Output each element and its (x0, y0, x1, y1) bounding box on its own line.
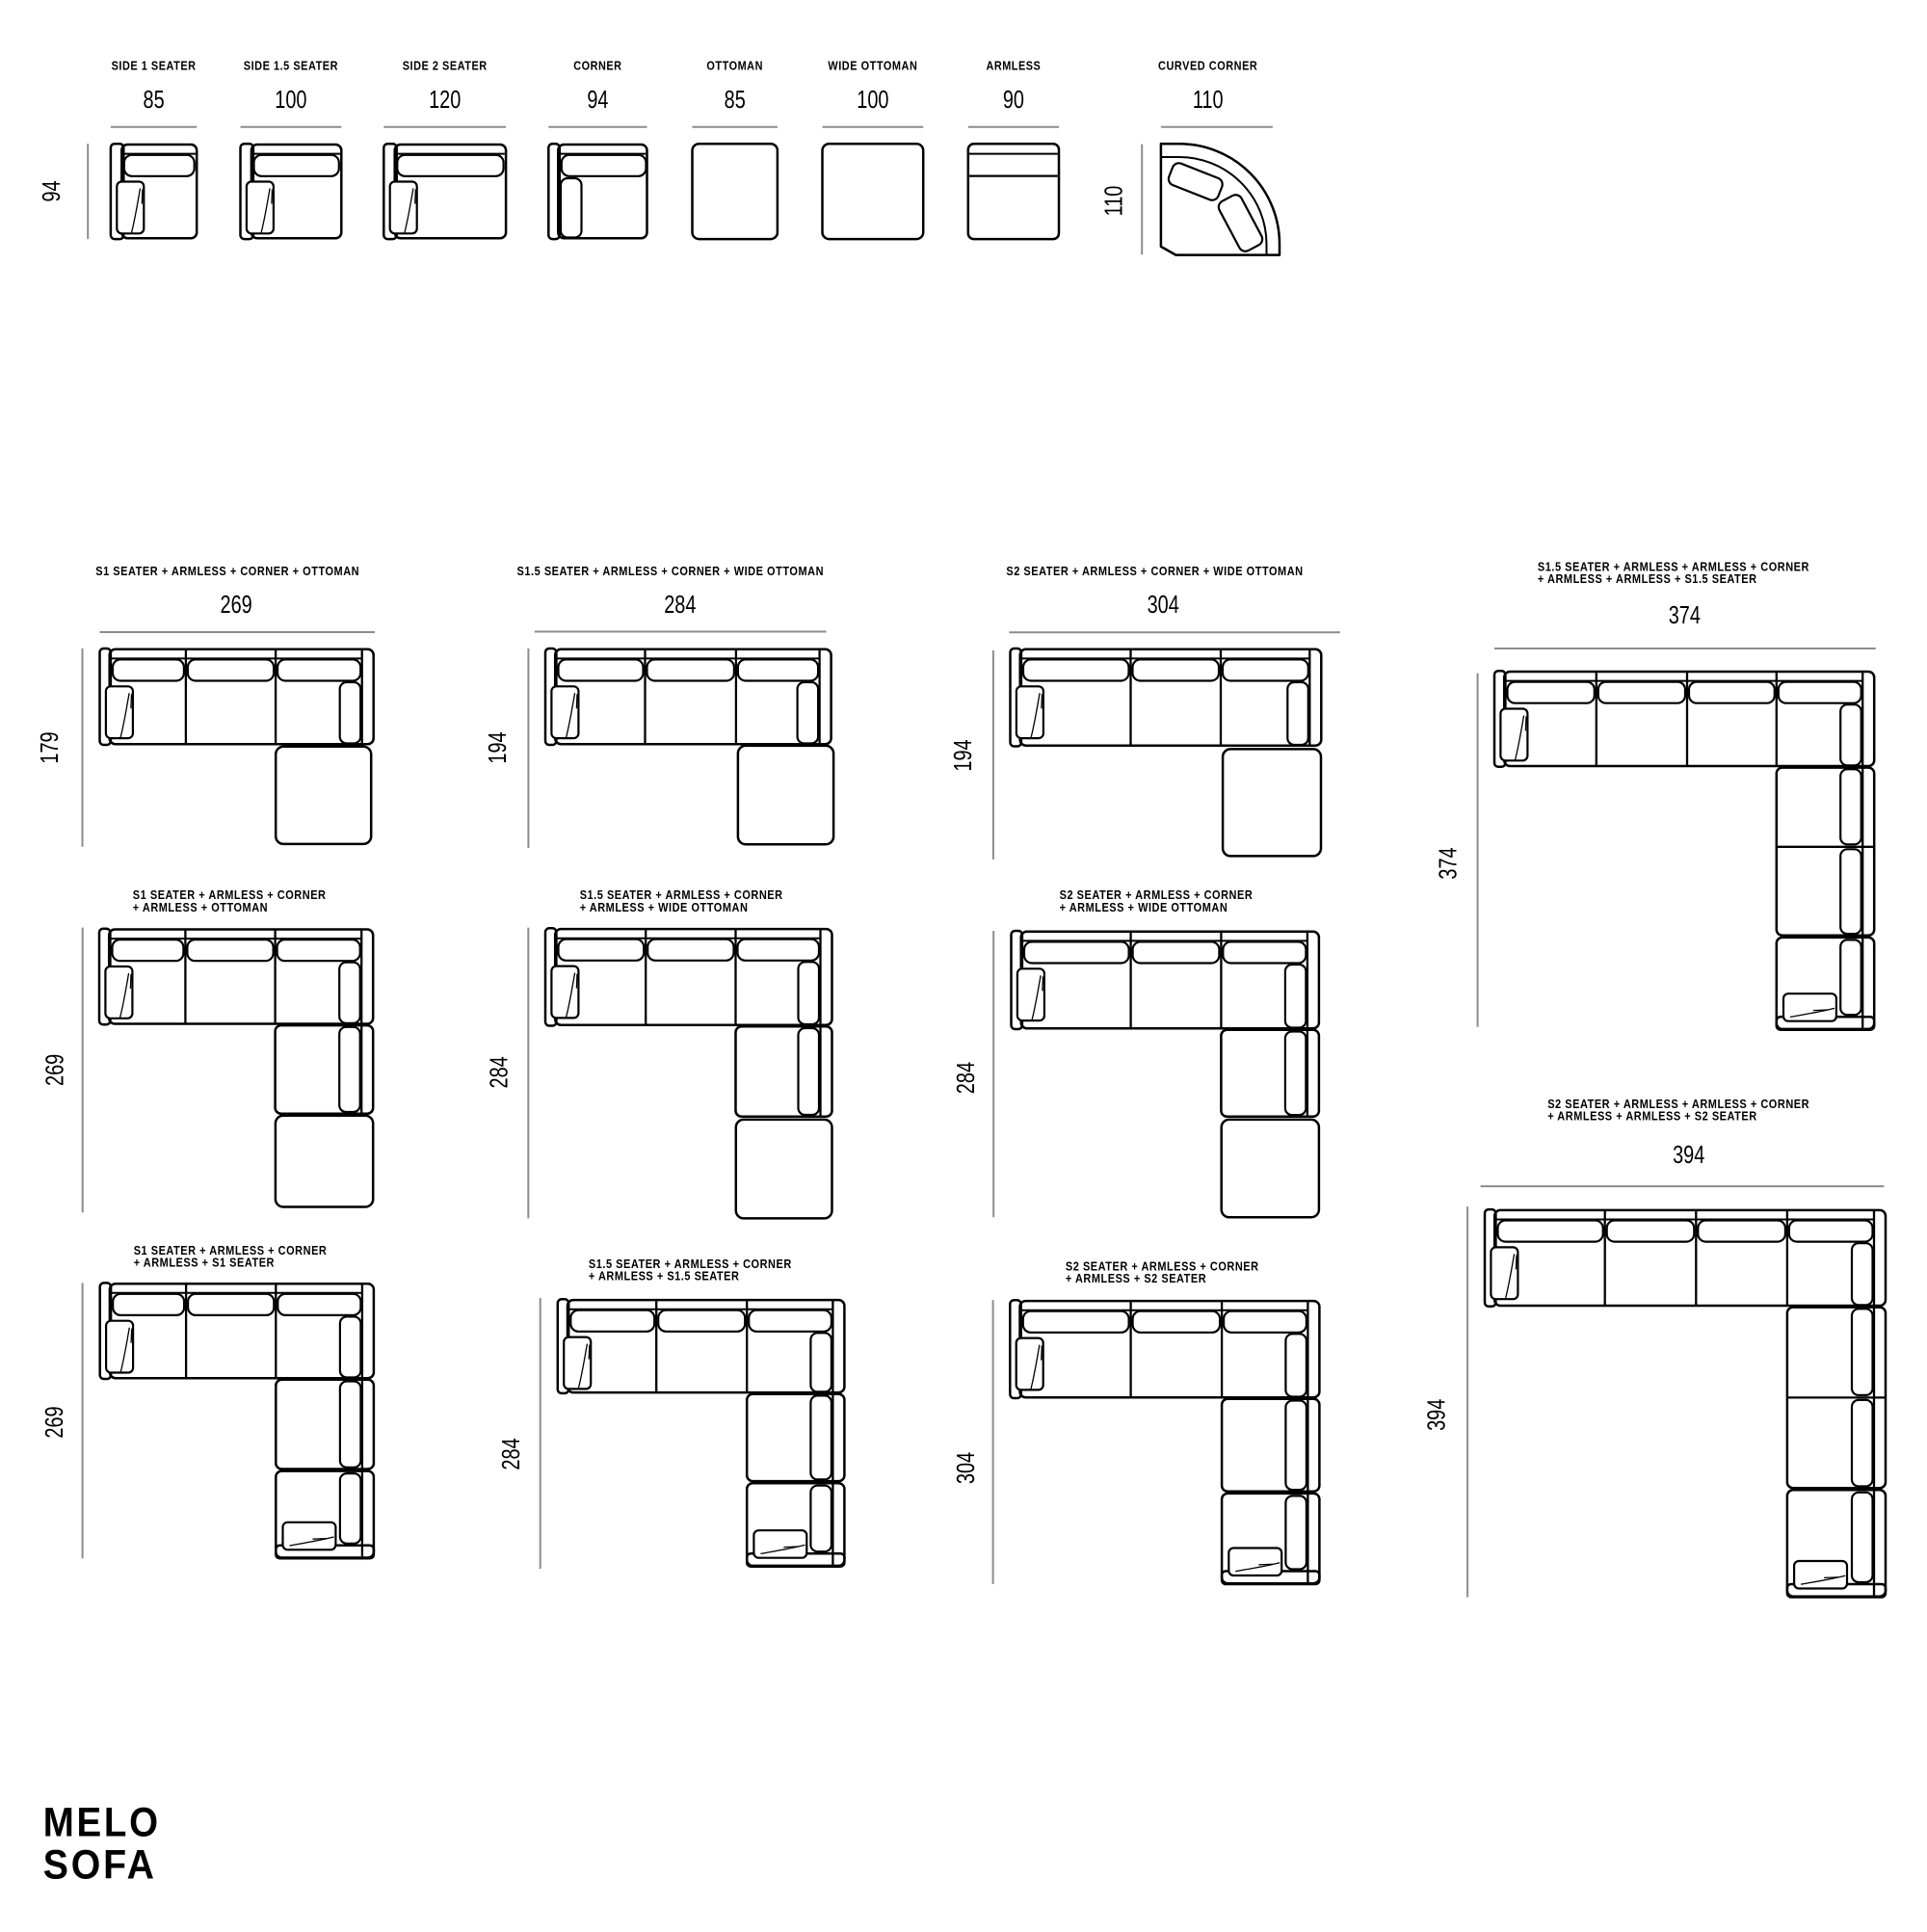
svg-text:194: 194 (485, 731, 512, 763)
svg-text:OTTOMAN: OTTOMAN (706, 59, 763, 72)
svg-text:CURVED CORNER: CURVED CORNER (1158, 59, 1257, 72)
svg-text:179: 179 (37, 731, 64, 763)
svg-text:+ ARMLESS + S2 SEATER: + ARMLESS + S2 SEATER (1066, 1272, 1206, 1285)
svg-text:SIDE 1.5 SEATER: SIDE 1.5 SEATER (244, 59, 338, 72)
svg-text:374: 374 (1669, 602, 1701, 629)
svg-text:SOFA: SOFA (43, 1842, 157, 1888)
svg-text:110: 110 (1193, 87, 1224, 114)
svg-text:284: 284 (487, 1056, 514, 1088)
svg-text:SIDE 2 SEATER: SIDE 2 SEATER (403, 59, 488, 72)
svg-text:S1.5 SEATER + ARMLESS + CORNER: S1.5 SEATER + ARMLESS + CORNER (580, 888, 783, 902)
svg-text:S1 SEATER + ARMLESS + CORNER: S1 SEATER + ARMLESS + CORNER (133, 888, 327, 902)
svg-text:S2 SEATER + ARMLESS + CORNER +: S2 SEATER + ARMLESS + CORNER + WIDE OTTO… (1006, 565, 1303, 578)
svg-text:SIDE 1 SEATER: SIDE 1 SEATER (112, 59, 197, 72)
svg-text:+ ARMLESS + WIDE OTTOMAN: + ARMLESS + WIDE OTTOMAN (580, 901, 749, 914)
svg-text:304: 304 (1148, 592, 1179, 619)
svg-text:269: 269 (41, 1406, 68, 1438)
svg-text:94: 94 (587, 87, 608, 114)
svg-text:S1 SEATER + ARMLESS + CORNER +: S1 SEATER + ARMLESS + CORNER + OTTOMAN (95, 565, 359, 578)
svg-text:+ ARMLESS + ARMLESS + S2 SEATE: + ARMLESS + ARMLESS + S2 SEATER (1547, 1109, 1757, 1123)
svg-text:85: 85 (144, 87, 165, 114)
svg-text:194: 194 (950, 739, 977, 771)
svg-text:WIDE OTTOMAN: WIDE OTTOMAN (828, 59, 917, 72)
svg-text:+ ARMLESS + ARMLESS + S1.5 SEA: + ARMLESS + ARMLESS + S1.5 SEATER (1538, 572, 1757, 586)
svg-text:284: 284 (664, 592, 696, 619)
svg-text:374: 374 (1435, 847, 1462, 879)
svg-text:S2 SEATER + ARMLESS + CORNER: S2 SEATER + ARMLESS + CORNER (1060, 888, 1254, 902)
svg-text:394: 394 (1673, 1142, 1704, 1169)
svg-text:CORNER: CORNER (573, 59, 621, 72)
svg-text:+ ARMLESS + S1 SEATER: + ARMLESS + S1 SEATER (134, 1256, 275, 1269)
svg-text:+ ARMLESS + S1.5 SEATER: + ARMLESS + S1.5 SEATER (589, 1269, 740, 1283)
svg-text:100: 100 (275, 87, 306, 114)
svg-text:S1.5 SEATER + ARMLESS + CORNER: S1.5 SEATER + ARMLESS + CORNER + WIDE OT… (517, 565, 825, 578)
svg-text:394: 394 (1424, 1399, 1451, 1431)
svg-text:110: 110 (1101, 186, 1128, 217)
svg-text:284: 284 (498, 1438, 525, 1469)
svg-text:90: 90 (1003, 87, 1024, 114)
svg-text:120: 120 (429, 87, 461, 114)
svg-text:+ ARMLESS + WIDE OTTOMAN: + ARMLESS + WIDE OTTOMAN (1060, 901, 1228, 914)
svg-text:ARMLESS: ARMLESS (986, 59, 1041, 72)
svg-text:304: 304 (953, 1452, 980, 1484)
svg-text:284: 284 (953, 1062, 980, 1094)
svg-text:MELO: MELO (43, 1801, 161, 1846)
svg-text:269: 269 (41, 1054, 68, 1086)
svg-text:94: 94 (39, 180, 66, 201)
svg-text:100: 100 (857, 87, 888, 114)
svg-text:269: 269 (221, 592, 252, 619)
svg-text:+ ARMLESS + OTTOMAN: + ARMLESS + OTTOMAN (133, 901, 268, 914)
svg-text:85: 85 (725, 87, 746, 114)
